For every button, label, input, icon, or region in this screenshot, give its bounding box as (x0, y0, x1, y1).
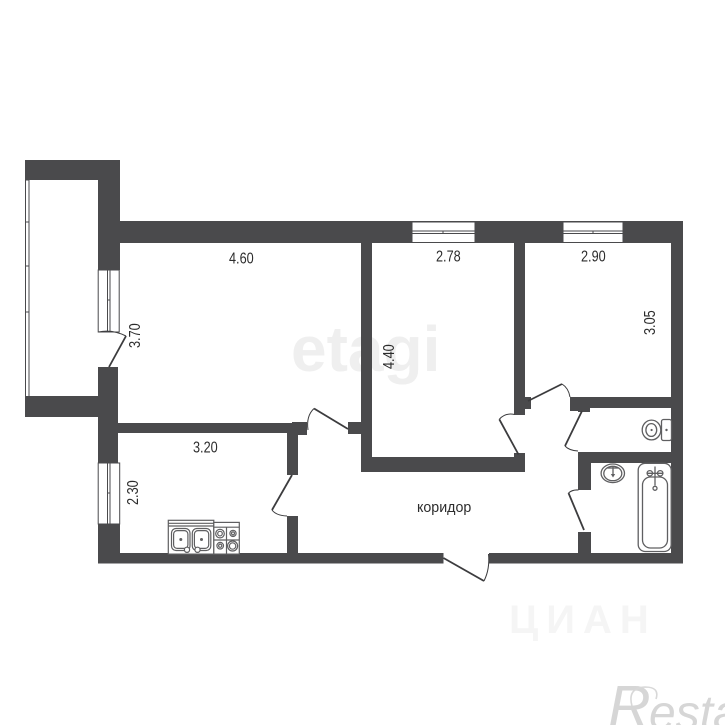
svg-text:3.20: 3.20 (193, 439, 218, 456)
svg-text:3.70: 3.70 (127, 323, 144, 348)
svg-text:R: R (608, 674, 651, 725)
svg-text:2.30: 2.30 (125, 480, 142, 505)
svg-text:4.60: 4.60 (229, 250, 254, 267)
svg-text:3.05: 3.05 (642, 310, 659, 335)
svg-text:2.90: 2.90 (581, 248, 606, 265)
svg-text:2.78: 2.78 (436, 248, 461, 265)
svg-text:estate: estate (649, 687, 725, 725)
svg-text:ЦИАН: ЦИАН (509, 598, 657, 642)
svg-text:коридор: коридор (417, 500, 471, 516)
svg-text:4.40: 4.40 (381, 344, 398, 369)
